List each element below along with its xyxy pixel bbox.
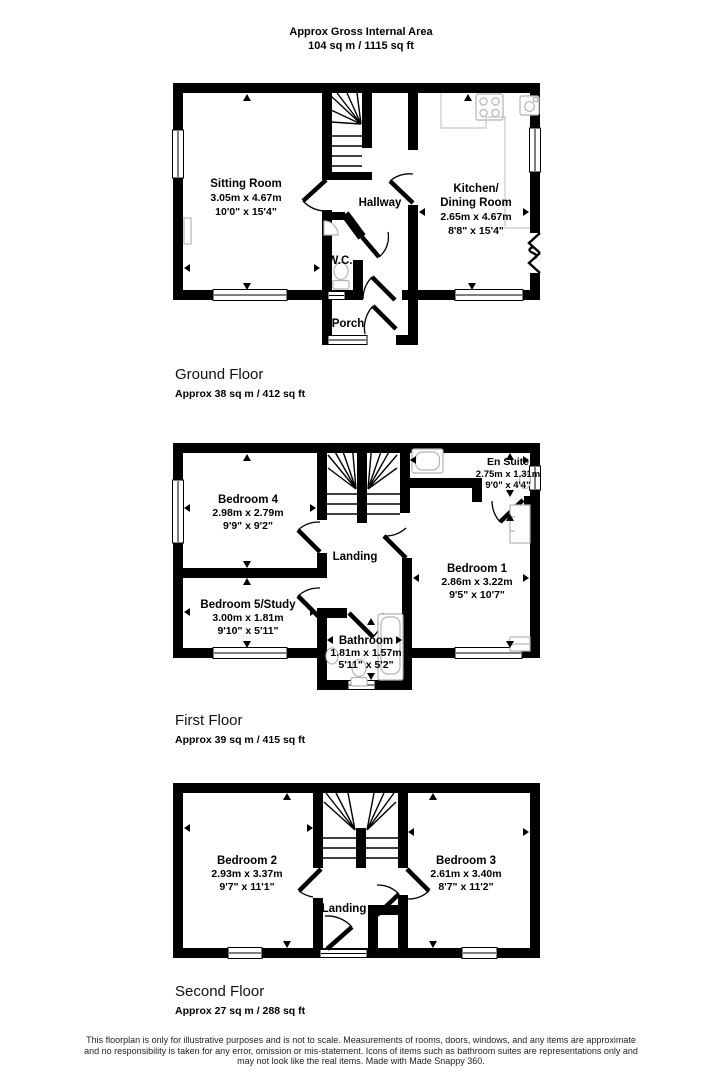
hallway-label: Hallway (359, 197, 402, 209)
radiator-icon (184, 218, 191, 244)
bedroom1-radiator-icon (510, 637, 530, 651)
bedroom1-door (384, 528, 406, 558)
kitchen-metric: 2.65m x 4.67m (440, 211, 511, 223)
sitting-room-left-window (173, 130, 184, 178)
wc-window (328, 292, 345, 300)
wc-door (362, 232, 388, 257)
ensuite-bath-icon (412, 449, 443, 473)
wc-label: W.C. (328, 255, 353, 267)
bedroom3-metric: 2.61m x 3.40m (430, 868, 501, 880)
kitchen-imperial: 8'8" x 15'4" (448, 225, 504, 237)
ground-staircase (330, 93, 362, 166)
first-floor-area: Approx 39 sq m / 415 sq ft (175, 734, 475, 746)
first-landing-label: Landing (333, 551, 378, 563)
bedroom1-label: Bedroom 1 (447, 563, 508, 575)
wc-angled-wall (345, 214, 362, 237)
ensuite-imperial: 9'0" x 4'4" (485, 480, 530, 491)
disclaimer-line2: and no responsibility is taken for any e… (0, 1046, 722, 1057)
first-floor-plan: Bedroom 4 2.98m x 2.79m 9'9" x 9'2" Bedr… (173, 443, 541, 690)
sitting-room-imperial: 10'0" x 15'4" (215, 206, 277, 218)
ground-floor-name: Ground Floor (175, 366, 475, 384)
landing-door (325, 916, 352, 949)
ground-floor-area: Approx 38 sq m / 412 sq ft (175, 388, 475, 400)
bedroom4-imperial: 9'9" x 9'2" (223, 520, 273, 532)
kitchen-label-line1: Kitchen/ (453, 183, 499, 195)
hallway-porch-door (363, 277, 395, 300)
bedroom2-metric: 2.93m x 3.37m (211, 868, 282, 880)
bedroom4-left-window (173, 480, 184, 543)
second-landing-label: Landing (322, 903, 367, 915)
floorplan-page: Approx Gross Internal Area 104 sq m / 11… (0, 0, 722, 1080)
bathroom-label: Bathroom (339, 635, 393, 647)
bedroom2-imperial: 9'7" x 11'1" (219, 881, 274, 893)
bathroom-imperial: 5'11" x 5'2" (338, 659, 393, 671)
bathroom-metric: 1.81m x 1.57m (330, 647, 401, 659)
bedroom5-door (298, 588, 320, 618)
wardrobe-icon (510, 505, 530, 543)
porch-window (328, 336, 367, 345)
bedroom4-door (298, 522, 320, 552)
ground-room-labels: Sitting Room 3.05m x 4.67m 10'0" x 15'4"… (210, 178, 512, 330)
bedroom1-metric: 2.86m x 3.22m (441, 576, 512, 588)
first-room-labels: Bedroom 4 2.98m x 2.79m 9'9" x 9'2" Bedr… (200, 456, 540, 671)
bedroom4-metric: 2.98m x 2.79m (212, 507, 283, 519)
wc-basin-icon (324, 221, 338, 235)
bedroom5-bottom-window (213, 648, 287, 659)
ensuite-label: En Suite (487, 456, 529, 468)
kitchen-sink-icon (520, 96, 539, 115)
bedroom3-label: Bedroom 3 (436, 855, 496, 867)
kitchen-label-line2: Dining Room (440, 197, 512, 209)
bedroom5-imperial: 9'10" x 5'11" (217, 625, 278, 637)
second-floor-area: Approx 27 sq m / 288 sq ft (175, 1005, 475, 1017)
disclaimer-line1: This floorplan is only for illustrative … (0, 1035, 722, 1046)
sitting-room-bottom-window (213, 290, 287, 301)
sitting-room-door (303, 180, 326, 211)
kitchen-bottom-window (455, 290, 523, 301)
second-floor-title: Second Floor Approx 27 sq m / 288 sq ft (175, 983, 475, 1017)
disclaimer: This floorplan is only for illustrative … (0, 1035, 722, 1067)
bedroom5-metric: 3.00m x 1.81m (212, 612, 283, 624)
floorplan-drawing: Sitting Room 3.05m x 4.67m 10'0" x 15'4"… (0, 0, 722, 1080)
bedroom1-imperial: 9'5" x 10'7" (449, 589, 505, 601)
second-floor-name: Second Floor (175, 983, 475, 1001)
bedroom3-window (462, 948, 497, 959)
bedroom5-label: Bedroom 5/Study (200, 599, 296, 611)
disclaimer-line3: may not look like the real items. Made w… (0, 1056, 722, 1067)
sitting-room-metric: 3.05m x 4.67m (210, 192, 281, 204)
hob-icon (476, 94, 503, 120)
sitting-room-label: Sitting Room (210, 178, 282, 190)
porch-label: Porch (332, 318, 365, 330)
ensuite-metric: 2.75m x 1.31m (476, 469, 540, 480)
bedroom4-label: Bedroom 4 (218, 494, 279, 506)
first-floor-name: First Floor (175, 712, 475, 730)
first-floor-title: First Floor Approx 39 sq m / 415 sq ft (175, 712, 475, 746)
bedroom2-door (299, 869, 321, 897)
second-floor-plan: Bedroom 2 2.93m x 3.37m 9'7" x 11'1" Bed… (173, 783, 540, 959)
second-landing-window (320, 950, 367, 958)
bedroom2-label: Bedroom 2 (217, 855, 277, 867)
bedroom2-window (228, 948, 262, 959)
bedroom3-door (407, 869, 429, 899)
ground-floor-title: Ground Floor Approx 38 sq m / 412 sq ft (175, 366, 475, 400)
kitchen-right-window (530, 128, 541, 172)
bedroom3-imperial: 8'7" x 11'2" (438, 881, 493, 893)
kitchen-french-doors (529, 233, 540, 273)
front-door (364, 306, 396, 334)
ground-floor-plan: Sitting Room 3.05m x 4.67m 10'0" x 15'4"… (173, 83, 541, 345)
